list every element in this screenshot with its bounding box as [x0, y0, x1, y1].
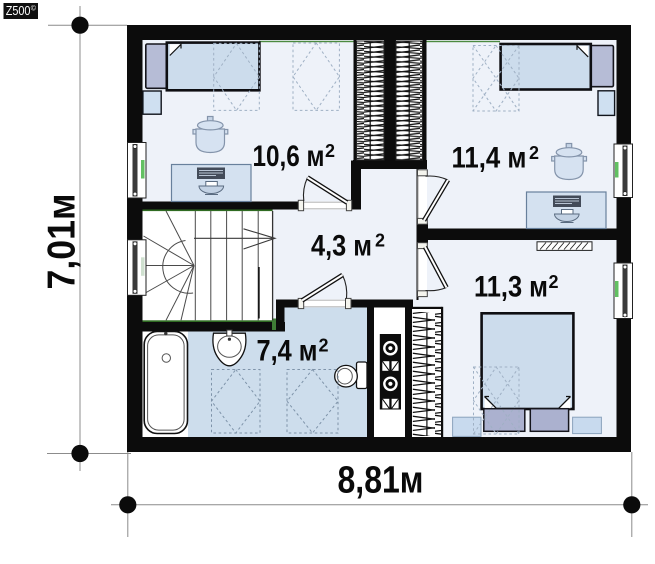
svg-text:2: 2 — [529, 143, 539, 163]
svg-text:11,4 м: 11,4 м — [452, 142, 527, 175]
svg-text:11,3 м: 11,3 м — [474, 271, 548, 304]
svg-text:4,3 м: 4,3 м — [311, 230, 372, 263]
svg-text:10,6 м: 10,6 м — [253, 140, 325, 173]
svg-text:2: 2 — [319, 336, 329, 356]
svg-text:2: 2 — [325, 141, 335, 161]
svg-text:8,81м: 8,81м — [338, 460, 424, 502]
svg-text:Z500: Z500 — [6, 3, 31, 18]
svg-text:2: 2 — [549, 272, 559, 292]
svg-text:2: 2 — [375, 231, 385, 251]
svg-text:7,4 м: 7,4 м — [257, 335, 318, 368]
svg-text:©: © — [31, 5, 37, 13]
svg-text:7,01м: 7,01м — [41, 194, 84, 290]
